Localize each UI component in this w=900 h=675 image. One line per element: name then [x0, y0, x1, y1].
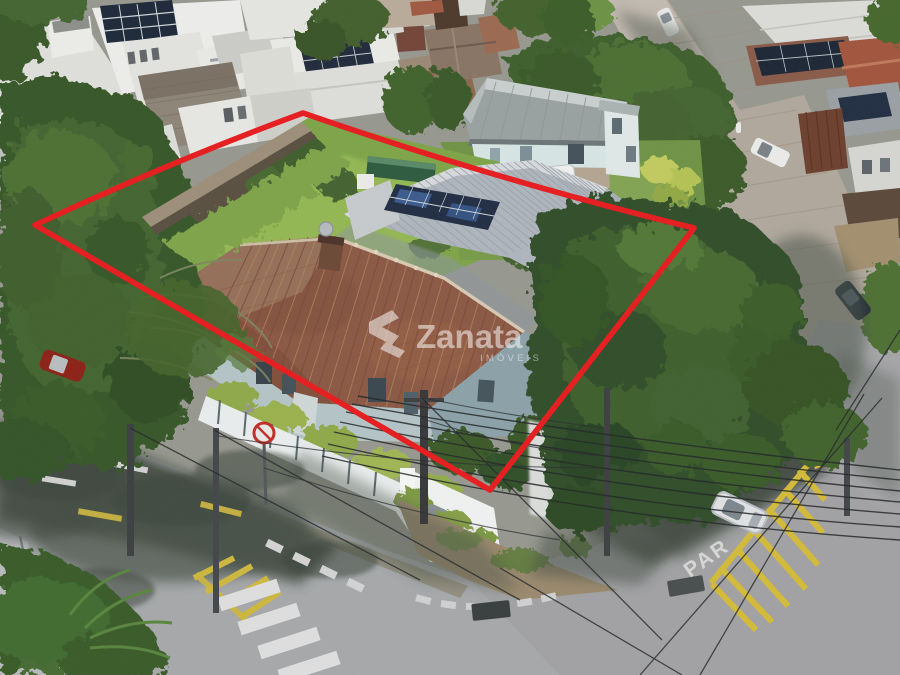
svg-text:Zanata: Zanata: [416, 318, 523, 355]
svg-text:IMÓVEIS: IMÓVEIS: [480, 353, 542, 364]
